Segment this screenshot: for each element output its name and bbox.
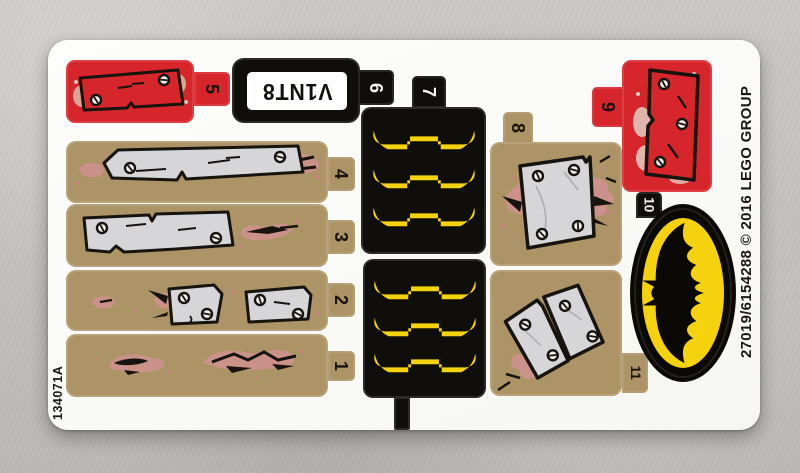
sticker-8	[490, 142, 622, 266]
sticker-3-number-tab: 3	[328, 220, 355, 254]
sticker-sheet: 134071A 27019/6154288 © 2016 LEGO GROUP …	[48, 40, 760, 430]
sticker-5-number: 5	[203, 84, 221, 94]
sticker-4-number: 4	[332, 169, 350, 179]
sticker-3-number: 3	[332, 232, 350, 242]
sticker-1-number: 1	[332, 361, 350, 371]
sheet-left-code: 134071A	[51, 366, 65, 420]
sticker-7-number-tab: 7	[412, 76, 446, 108]
sticker-1-number-tab: 1	[328, 351, 355, 381]
sticker-9-number: 9	[599, 102, 617, 112]
sticker-4	[66, 141, 328, 203]
claw-marks-graphic	[363, 259, 486, 398]
sticker-7	[361, 107, 486, 254]
license-plate: V1NT8	[247, 72, 347, 110]
sticker-7b-tab	[394, 397, 410, 430]
sticker-2	[66, 270, 328, 331]
license-plate-text: V1NT8	[262, 78, 332, 105]
claw-marks-graphic	[361, 107, 486, 254]
sticker-2-number: 2	[332, 295, 350, 305]
sticker-3	[66, 204, 328, 267]
sticker-11	[490, 270, 622, 396]
plank-row-graphic	[66, 270, 328, 331]
sticker-2-number-tab: 2	[328, 283, 355, 317]
plank-row-graphic	[66, 204, 328, 267]
plank-row-graphic	[66, 141, 328, 203]
sticker-4-number-tab: 4	[328, 157, 355, 191]
sticker-5-number-tab: 5	[194, 72, 230, 106]
sticker-6-number: 6	[367, 82, 385, 92]
paper-note-graphic	[490, 142, 622, 266]
red-vertical-plank-graphic	[622, 60, 712, 192]
sticker-8-number: 8	[509, 123, 527, 133]
batman-logo	[628, 202, 738, 384]
sheet-right-code: 27019/6154288 © 2016 LEGO GROUP	[738, 86, 755, 358]
sticker-9	[622, 60, 712, 192]
sticker-9-number-tab: 9	[592, 87, 624, 127]
sticker-1	[66, 334, 328, 397]
sticker-7b	[363, 259, 486, 398]
sticker-6: V1NT8	[232, 58, 360, 123]
photo-background: 134071A 27019/6154288 © 2016 LEGO GROUP …	[0, 0, 800, 473]
red-plank-graphic	[66, 60, 194, 123]
sticker-5	[66, 60, 194, 123]
sticker-7-number: 7	[420, 87, 438, 97]
crack-row-graphic	[66, 334, 328, 397]
torn-note-graphic	[490, 270, 622, 396]
sticker-6-number-tab: 6	[358, 70, 394, 105]
sticker-8-number-tab: 8	[503, 112, 533, 144]
